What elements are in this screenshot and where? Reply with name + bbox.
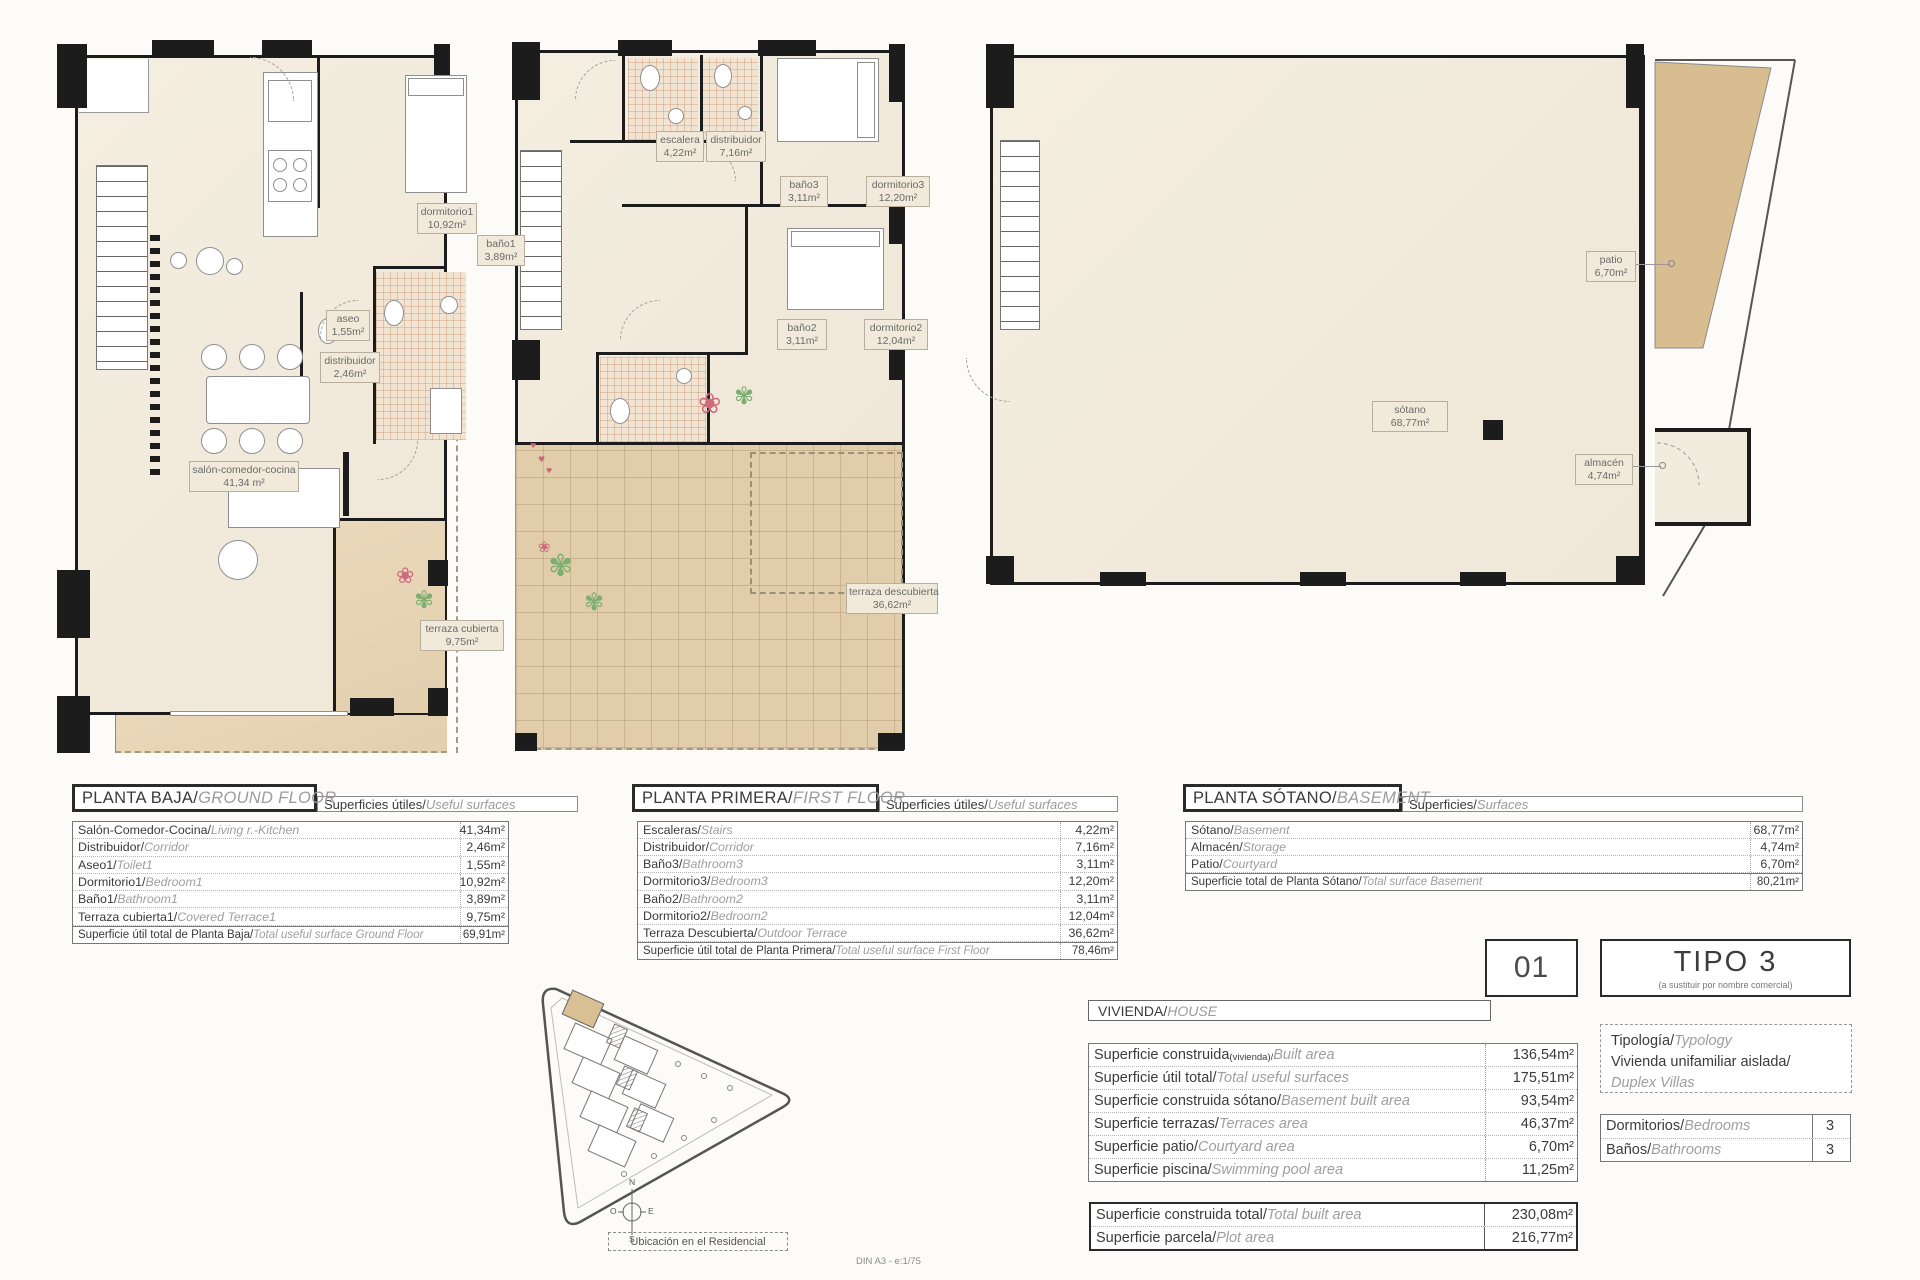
table-row: Superficie construida(vivienda)/Built ar… (1089, 1044, 1577, 1067)
typology-value: Vivienda unifamiliar aislada/Duplex Vill… (1611, 1052, 1841, 1094)
table-row: Almacén/Storage4,74m² (1186, 839, 1802, 856)
compass-n: N (629, 1177, 635, 1187)
leader-line (1631, 466, 1661, 467)
pillow (791, 231, 880, 247)
pillar (889, 44, 905, 102)
vivienda-header: VIVIENDA/HOUSE (1088, 1000, 1491, 1021)
compass-e: E (648, 1206, 654, 1216)
pillar (878, 733, 904, 751)
terrace-strip (115, 715, 447, 753)
patio-area (1655, 62, 1771, 348)
room-label-distribuidor: distribuidor2,46m² (320, 352, 380, 383)
tree (652, 1154, 657, 1159)
room-label-bano3: baño33,11m² (780, 176, 828, 207)
wall-segment (745, 207, 748, 355)
chair (201, 344, 227, 370)
toilet (640, 65, 660, 91)
chair (239, 344, 265, 370)
room-label-terraza-cubierta: terraza cubierta9,75m² (420, 620, 504, 651)
table-row: Salón-Comedor-Cocina/Living r.-Kitchen41… (73, 822, 508, 839)
sink (738, 106, 752, 120)
room-label-dormitorio3: dormitorio312,20m² (866, 176, 930, 207)
table-row: Distribuidor/Corridor7,16m² (638, 839, 1117, 856)
room-label-bano2: baño23,11m² (777, 319, 827, 350)
basement-outline (990, 55, 1645, 585)
table-row: Baños/Bathrooms3 (1601, 1139, 1850, 1162)
stove (268, 150, 312, 202)
first-floor-title: PLANTA PRIMERA/FIRST FLOOR (632, 784, 879, 812)
table-total-row: Superficie útil total de Planta Primera/… (638, 942, 1117, 959)
table-row: Superficie útil total/Total useful surfa… (1089, 1067, 1577, 1090)
burner (273, 178, 287, 192)
chair (201, 428, 227, 454)
pillar (262, 40, 312, 56)
room-label-salon: salón-comedor-cocina41,34 m² (189, 461, 299, 492)
dining-table (206, 376, 310, 424)
site-plan (518, 982, 798, 1232)
table-row: Terraza cubierta1/Covered Terrace19,75m² (73, 908, 508, 925)
ground-surfaces-header: Superficies útiles/Useful surfaces (317, 796, 578, 812)
pillow (857, 62, 875, 138)
wall-segment (622, 55, 625, 143)
structural-column (1483, 420, 1503, 440)
tree (682, 1136, 687, 1141)
wall-segment (343, 452, 349, 516)
pillar (512, 340, 540, 380)
heart-decoration: ♥ (538, 456, 545, 464)
window (170, 711, 348, 716)
burner (293, 178, 307, 192)
sink (676, 368, 692, 384)
toilet (384, 300, 404, 326)
first-surfaces-table: Escaleras/Stairs4,22m² Distribuidor/Corr… (637, 821, 1118, 960)
pillar (1460, 572, 1506, 586)
type-box: TIPO 3 (a sustituir por nombre comercial… (1600, 939, 1851, 997)
table-row: Superficie patio/Courtyard area6,70m² (1089, 1136, 1577, 1159)
table-row: Superficie construida sótano/Basement bu… (1089, 1090, 1577, 1113)
pouf (218, 540, 258, 580)
tree (712, 1118, 717, 1123)
rooms-table: Dormitorios/Bedrooms3 Baños/Bathrooms3 (1600, 1114, 1851, 1162)
table-row: Superficie piscina/Swimming pool area11,… (1089, 1159, 1577, 1181)
table-row: Terraza Descubierta/Outdoor Terrace36,62… (638, 925, 1117, 942)
chair (239, 428, 265, 454)
pillar (428, 688, 448, 716)
wall-segment (373, 266, 447, 269)
table-row: Distribuidor/Corridor2,46m² (73, 839, 508, 856)
staircase (520, 150, 562, 330)
pillar (758, 40, 816, 56)
table-total-row: Superficie total de Planta Sótano/Total … (1186, 873, 1802, 890)
entry-porch (79, 59, 149, 113)
room-label-terraza-descubierta: terraza descubierta36,62m² (846, 583, 938, 614)
unit-block (588, 1125, 636, 1167)
flower-decoration: ❀ (698, 390, 721, 418)
pillar (350, 698, 394, 716)
basement-right-wing (1645, 48, 1805, 608)
flower-decoration: ❀ (396, 566, 414, 588)
stair-balustrade (150, 235, 160, 480)
door-arc (966, 358, 1010, 402)
table-row: Patio/Courtyard6,70m² (1186, 856, 1802, 873)
type-subtitle: (a sustituir por nombre comercial) (1658, 980, 1792, 990)
pillar (515, 733, 537, 751)
first-surfaces-header: Superficies útiles/Useful surfaces (879, 796, 1118, 812)
stool (170, 252, 187, 269)
table-row: Escaleras/Stairs4,22m² (638, 822, 1117, 839)
site-caption: Ubicación en el Residencial (608, 1232, 788, 1251)
wall-segment (700, 55, 703, 143)
flower-decoration: ✾ (414, 588, 434, 612)
room-label-bano1: baño13,89m² (477, 235, 525, 266)
toilet (714, 64, 732, 88)
room-label-distribuidor: distribuidor7,16m² (706, 131, 766, 162)
basement-title: PLANTA SÓTANO/BASEMENT (1183, 784, 1402, 812)
pillar (986, 44, 1014, 108)
covered-terrace-area (333, 518, 445, 713)
tree (622, 1172, 627, 1177)
table-row: Dormitorio2/Bedroom212,04m² (638, 908, 1117, 925)
unit-number-box: 01 (1485, 939, 1578, 997)
staircase (1000, 140, 1040, 330)
pillow (408, 78, 464, 96)
flower-decoration: ❀ (538, 540, 551, 555)
tree (728, 1086, 733, 1091)
typology-box: Tipología/Typology Vivienda unifamiliar … (1600, 1024, 1852, 1093)
pillar (1626, 44, 1644, 108)
ground-floor-title: PLANTA BAJA/GROUND FLOOR (72, 784, 317, 812)
sheet-scale-note: DIN A3 - e:1/75 (856, 1256, 921, 1267)
table-row: Aseo1/Toilet11,55m² (73, 857, 508, 874)
shower-tray (430, 388, 462, 434)
pillar (57, 696, 90, 753)
totals-table: Superficie construida total/Total built … (1089, 1202, 1578, 1251)
room-label-dormitorio1: dormitorio110,92m² (417, 203, 477, 234)
basement-surfaces-table: Sótano/Basement68,77m² Almacén/Storage4,… (1185, 821, 1803, 891)
wall-segment (596, 355, 599, 443)
leader-dot (1659, 462, 1666, 469)
heart-decoration: ♥ (546, 468, 552, 475)
unit-number: 01 (1514, 951, 1549, 985)
typology-label: Tipología/Typology (1611, 1031, 1841, 1052)
table-row: Dormitorios/Bedrooms3 (1601, 1115, 1850, 1139)
flower-decoration: ✾ (548, 552, 573, 582)
flower-decoration: ✾ (734, 384, 754, 408)
chair (277, 344, 303, 370)
table-total-row: Superficie útil total de Planta Baja/Tot… (73, 926, 508, 943)
table-row: Baño3/Bathroom33,11m² (638, 856, 1117, 873)
room-label-escalera: escalera4,22m² (656, 131, 704, 162)
room-label-aseo: aseo1,55m² (326, 310, 370, 341)
plan-sheet: ❀ ✾ dormitorio110,92m² baño13,89m² aseo1… (0, 0, 1920, 1280)
ground-surfaces-table: Salón-Comedor-Cocina/Living r.-Kitchen41… (72, 821, 509, 944)
plot-dashed-line (456, 385, 458, 753)
pillar (152, 40, 214, 56)
leader-line (1636, 264, 1670, 265)
table-row: Dormitorio1/Bedroom110,92m² (73, 874, 508, 891)
table-row: Dormitorio3/Bedroom312,20m² (638, 873, 1117, 890)
chair (277, 428, 303, 454)
pillar (428, 560, 448, 586)
toilet (610, 398, 630, 424)
burner (293, 158, 307, 172)
compass-o: O (610, 1206, 617, 1216)
wall-segment (596, 352, 748, 355)
tree (702, 1074, 707, 1079)
title-es: PLANTA BAJA/ (82, 789, 198, 808)
flower-decoration: ✾ (584, 590, 604, 614)
room-label-patio: patio6,70m² (1586, 251, 1636, 282)
burner (273, 158, 287, 172)
pillar (1616, 556, 1644, 584)
table-row: Baño2/Bathroom23,11m² (638, 891, 1117, 908)
room-label-dormitorio2: dormitorio212,04m² (864, 319, 928, 350)
wall-segment (622, 204, 905, 207)
pillar (512, 42, 540, 100)
table-row: Baño1/Bathroom13,89m² (73, 891, 508, 908)
pillar (57, 44, 87, 108)
side-table (196, 247, 224, 275)
storage-room-walls (1655, 430, 1749, 524)
pillar (986, 556, 1014, 584)
table-row: Superficie construida total/Total built … (1091, 1204, 1576, 1227)
sink (440, 296, 458, 314)
pillar (1300, 572, 1346, 586)
room-label-sotano: sótano68,77m² (1372, 401, 1448, 432)
pool-dashed-outline (750, 452, 903, 594)
staircase (96, 165, 148, 370)
heart-decoration: ♥ (530, 443, 536, 450)
vivienda-table: Superficie construida(vivienda)/Built ar… (1088, 1043, 1578, 1182)
table-row: Superficie parcela/Plot area216,77m² (1091, 1227, 1576, 1249)
leader-dot (1668, 260, 1675, 267)
stool (226, 258, 243, 275)
type-title: TIPO 3 (1674, 946, 1778, 979)
pillar (57, 570, 90, 638)
tree (676, 1062, 681, 1067)
sink (668, 108, 684, 124)
basement-surfaces-header: Superficies/Surfaces (1402, 796, 1803, 812)
title-en: GROUND FLOOR (198, 789, 336, 808)
pillar (1100, 572, 1146, 586)
table-row: Sótano/Basement68,77m² (1186, 822, 1802, 839)
room-label-almacen: almacén4,74m² (1575, 454, 1633, 485)
bathroom-tiled-floor (628, 58, 698, 140)
pillar (618, 40, 672, 56)
table-row: Superficie terrazas/Terraces area46,37m² (1089, 1113, 1577, 1136)
